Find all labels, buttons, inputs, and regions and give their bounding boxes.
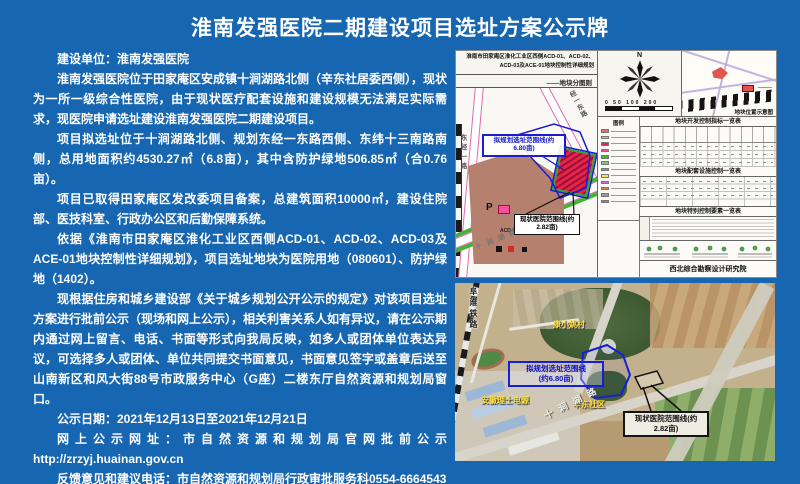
building-mark [522,247,527,252]
scale-bar [605,106,673,111]
parking-chip [498,205,510,214]
legend-label-line [611,156,636,157]
panel-top: N 0 50 100 200 [598,51,776,117]
notice-board: 淮南发强医院二期建设项目选址方案公示牌 建设单位：淮南发强医院 淮南发强医院位于… [0,0,800,484]
locator-map: 地块位置示意图 [682,51,776,116]
table1-row [640,143,776,151]
callout-line: 6.80亩) [513,145,534,152]
table1-row [640,151,776,159]
legend-label-line [611,137,636,138]
table3-side-band [640,217,650,240]
legend-item [601,198,636,204]
legend-label-line [611,195,636,196]
tables-column: 地块开发控制指标一览表 地块配套设施控制一览表 地块特别控制要素一览表 [640,117,776,277]
row-content [643,162,773,163]
callout-line: 2.82亩) [536,224,557,231]
legend-label-line [611,150,636,151]
plan-map-title: 淮南市田家庵区淮化工业区西侧ACD-01、ACD-02、ACD-03及ACE-0… [456,51,597,75]
notice-paragraph: 项目拟选址位于十涧湖路北侧、规划东经一东路西侧、东纬十三南路南侧，总用地面积约4… [33,129,447,189]
callout-existing-hospital: 现状医院范围线(约 2.82亩) [514,214,580,235]
planning-map: 淮南市田家庵区淮化工业区西侧ACD-01、ACD-02、ACD-03及ACE-0… [455,50,777,278]
legend-label-line [611,143,636,144]
callout-line: 现状医院范围线(约 [520,216,574,223]
legend-label-line [611,163,636,164]
legend-swatch [601,168,609,172]
notice-paragraph: 依据《淮南市田家庵区淮化工业区西侧ACD-01、ACD-02、ACD-03及AC… [33,229,447,289]
legend-swatch [601,187,609,191]
legend-swatch [601,161,609,165]
legend-title: 图例 [601,119,636,127]
notice-paragraph: 反馈意见和建议电话：市自然资源和规划局行政审批服务科0554-6664543 [33,469,447,484]
roundabout [601,339,616,354]
building-mark-red [508,246,514,252]
plan-map-panel: N 0 50 100 200 [598,51,776,277]
callout-proposed-site: 拟规划选址范围线 (约6.80亩) [508,361,604,387]
legend-swatch [601,155,609,159]
village-label: 康小姚村 [553,319,585,330]
legend-swatch [601,129,609,133]
legend-swatch [601,174,609,178]
wind-rose-icon [618,59,662,99]
callout-existing-hospital: 现状医院范围线(约 2.82亩) [623,411,709,437]
legend-swatch [601,193,609,197]
table3-dense-text [652,219,774,238]
legend-swatch [601,149,609,153]
callout-line: 拟规划选址范围线(约 [494,137,555,144]
railway-label: 阜淮铁路 [468,287,479,331]
notice-paragraph: 淮南发强医院位于田家庵区安成镇十涧湖路北侧（辛东社居委西侧），现状为一所一级综合… [33,69,447,129]
building-mark [496,246,502,252]
callout-line: (约6.80亩) [539,374,574,383]
parking-label: P [486,202,493,213]
notice-text-block: 建设单位：淮南发强医院 淮南发强医院位于田家庵区安成镇十涧湖路北侧（辛东社居委西… [33,49,447,484]
plan-map-sheet: 淮南市田家庵区淮化工业区西侧ACD-01、ACD-02、ACD-03及ACE-0… [456,51,598,277]
table1-title: 地块开发控制指标一览表 [640,117,776,127]
callout-line: 现状医院范围线(约 [635,414,698,423]
plan-map-subtitle: ——地块分图则 [456,75,597,88]
cross-section-diagrams [640,241,776,261]
notice-paragraph: 建设单位：淮南发强医院 [33,49,447,69]
design-institute: 西北综合勘察设计研究院 [640,261,776,277]
row-content [643,146,773,147]
locator-caption: 地块位置示意图 [733,108,774,116]
table2-title: 地块配套设施控制一览表 [640,167,776,177]
compass-block: N 0 50 100 200 [598,51,682,116]
satellite-map: 阜淮铁路 康小姚村 安徽理士电源 辛东社区 十涧湖路 拟规划选址范围线 (约6.… [455,283,775,461]
notice-paragraph: 公示日期：2021年12月13日至2021年12月21日 [33,409,447,429]
legend-swatch [601,200,609,204]
factory-label: 安徽理士电源 [481,395,529,406]
table3-title: 地块特别控制要素一览表 [640,207,776,217]
legend-label-line [611,182,636,183]
legend-column: 图例 [598,117,640,277]
legend-box: 图例 [598,117,639,221]
row-content [643,181,773,182]
callout-proposed-site: 拟规划选址范围线(约 6.80亩) [482,134,566,157]
road-cross-sections [640,241,776,261]
north-label: N [598,52,681,59]
legend-label-line [611,175,636,176]
legend-swatch [601,142,609,146]
legend-swatch [601,136,609,140]
table1-header [640,127,776,143]
locator-legend-line [758,87,772,88]
panel-body: 图例 地 [598,117,776,277]
callout-line: 拟规划选址范围线 [526,364,586,373]
table1-row [640,159,776,167]
table2-grid [640,177,776,207]
callout-line: 2.82亩) [654,424,679,433]
table3-body [640,217,776,241]
notice-paragraph: 网上公示网址：市自然资源和规划局官网批前公示http://zrzyj.huain… [33,429,447,469]
road-label-dongjingyi: 东经一路 [457,134,467,172]
notice-paragraph: 项目已取得田家庵区发改委项目备案，总建筑面积10000㎡，建设住院部、医技科室、… [33,189,447,229]
page-title: 淮南发强医院二期建设项目选址方案公示牌 [0,12,800,42]
legend-label-line [611,201,636,202]
legend-label-line [611,169,636,170]
road-label-jingyidong: 经一东路 [566,89,589,120]
notice-paragraph: 现根据住房和城乡建设部《关于城乡规划公开公示的规定》对该项目选址方案进行批前公示… [33,289,447,409]
legend-label-line [611,131,636,132]
legend-swatch [601,181,609,185]
plan-canvas: 东经一路 经一东路 十涧湖路 P ACD-01 [456,88,597,277]
legend-label-line [611,188,636,189]
row-content [643,154,773,155]
row-content [643,195,773,196]
row-content [643,188,773,189]
